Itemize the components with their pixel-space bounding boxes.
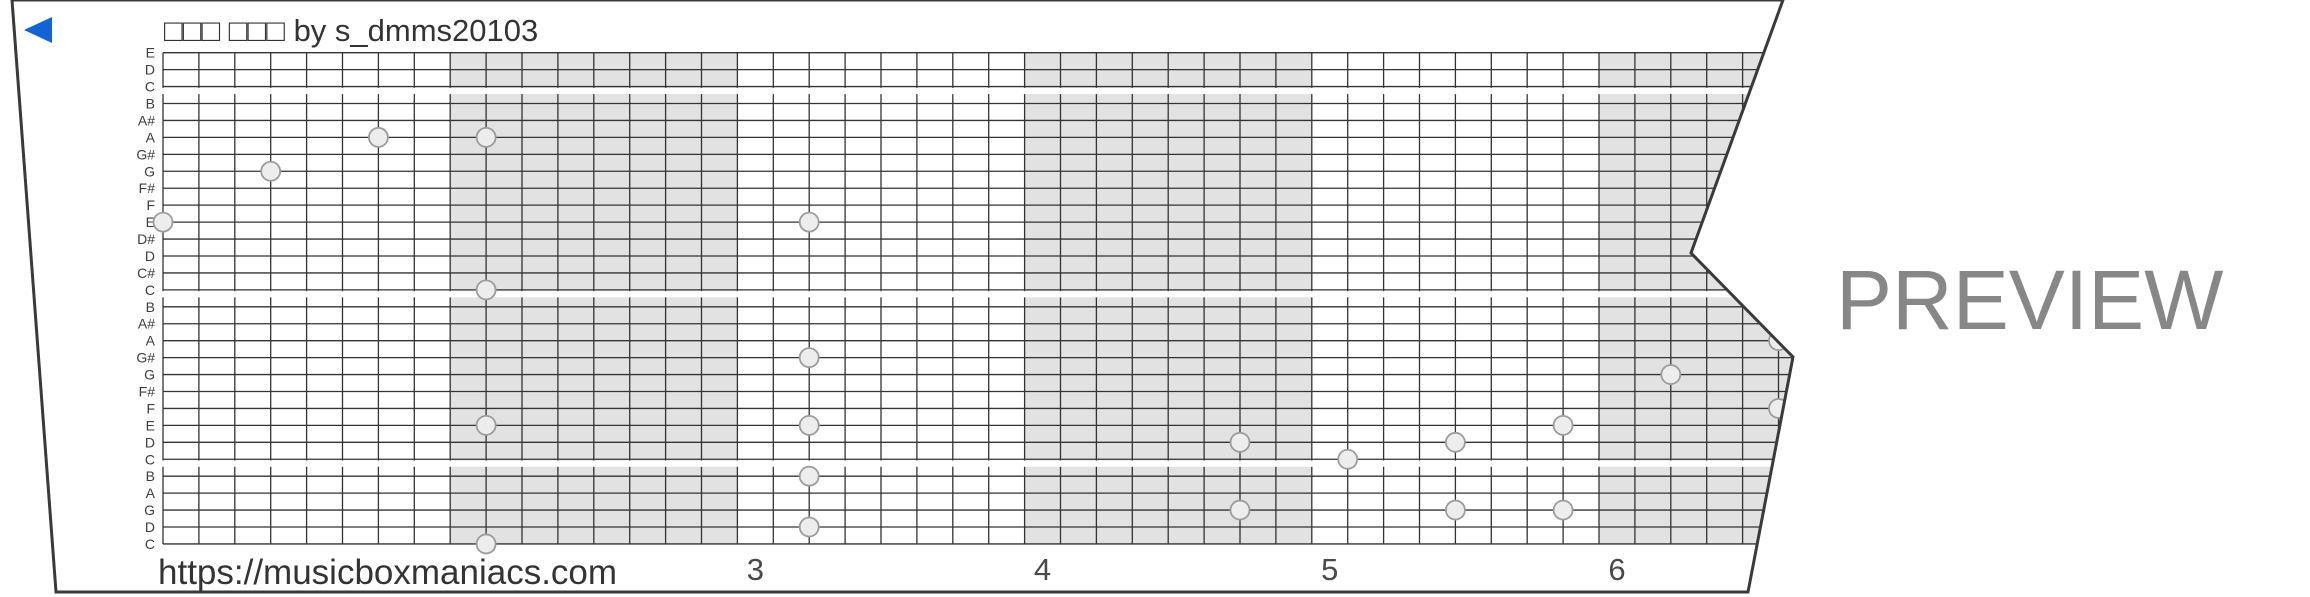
note-dot [261,162,280,181]
pitch-label: F# [139,384,156,400]
note-dot [477,534,496,553]
octave-break-gap [162,291,1830,297]
back-button[interactable] [22,14,58,46]
pitch-label: D [145,519,155,535]
note-dot [1554,501,1573,520]
pitch-label: B [146,299,155,315]
melody-title: □□□ □□□ by s_dmms20103 [164,13,538,49]
pitch-label: E [146,417,155,433]
pitch-label: A [146,333,156,349]
note-dot [477,280,496,299]
melody-preview-page: EDCBA#AG#GF#FED#DC#CBA#AG#GF#FEDCBAGDC34… [0,0,2310,597]
pitch-label: G# [136,146,155,162]
pitch-label: D [145,248,155,264]
measure-number: 4 [1034,552,1051,587]
pitch-label: B [146,468,155,484]
pitch-label: C [145,282,155,298]
pitch-label: A# [138,316,155,332]
note-dot [477,416,496,435]
pitch-label: G [144,367,155,383]
note-dot [477,128,496,147]
pitch-label: A [146,129,156,145]
pitch-label: B [146,96,155,112]
note-dot [1231,433,1250,452]
pitch-label: D [145,434,155,450]
pitch-label: D [145,62,155,78]
back-arrow-icon [24,17,52,43]
note-dot [800,348,819,367]
pitch-label: F [146,400,155,416]
note-dot [1554,416,1573,435]
pitch-label: D# [137,231,155,247]
measure-number: 3 [747,552,764,587]
octave-break-gap [162,461,1830,467]
pitch-label: C [145,79,155,95]
preview-watermark: PREVIEW [1836,258,2223,342]
note-dot [800,416,819,435]
site-url: https://musicboxmaniacs.com [158,553,617,593]
note-dot [800,213,819,232]
pitch-label: A# [138,112,155,128]
octave-break-gap [162,88,1830,94]
pitch-label: G [144,163,155,179]
pitch-label: C [145,536,155,552]
note-dot [1338,450,1357,469]
measure-number: 6 [1608,552,1625,587]
note-dot [800,467,819,486]
note-dot [1231,501,1250,520]
note-dot [154,213,173,232]
pitch-label: A [146,485,156,501]
pitch-label: C# [137,265,155,281]
pitch-label: F [146,197,155,213]
note-dot [1446,501,1465,520]
pitch-label: G# [136,350,155,366]
pitch-label: E [146,45,155,61]
note-dot [1446,433,1465,452]
note-dot [1661,365,1680,384]
measure-number: 5 [1321,552,1338,587]
pitch-label: G [144,502,155,518]
pitch-label: C [145,451,155,467]
pitch-label: F# [139,180,156,196]
note-dot [369,128,388,147]
note-dot [800,518,819,537]
